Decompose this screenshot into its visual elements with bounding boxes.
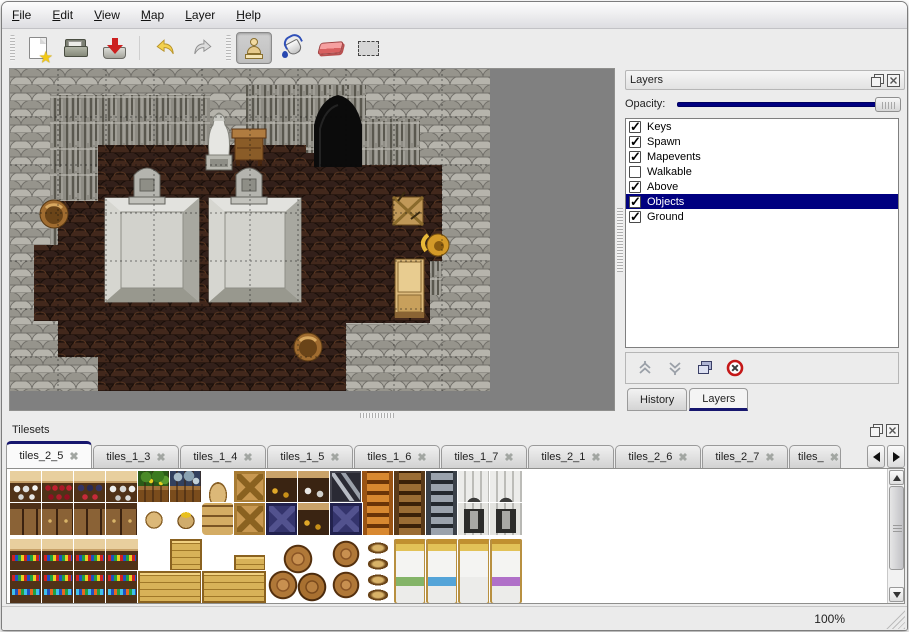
float-panel-icon[interactable] — [870, 424, 883, 437]
tileset-tab-label: tiles_2_1 — [541, 451, 585, 463]
tile-crate-navy[interactable] — [330, 503, 362, 535]
close-panel-icon[interactable] — [887, 74, 900, 87]
toolbar-grip[interactable] — [226, 35, 231, 61]
tile-ladder-gray[interactable] — [426, 471, 458, 535]
layer-row-mapevents[interactable]: Mapevents — [626, 149, 898, 164]
menu-layer[interactable]: Layer — [185, 8, 215, 22]
redo-icon — [191, 37, 215, 59]
tile-shelf-goods-bot[interactable] — [106, 571, 138, 603]
app-window: FileEditViewMapLayerHelp ★ — [1, 1, 908, 631]
tile-sack-big[interactable] — [138, 503, 170, 535]
platform[interactable] — [209, 198, 301, 302]
dock-tabs: HistoryLayers — [627, 388, 750, 411]
tile-sign-z4[interactable] — [330, 471, 362, 503]
opacity-slider-groove[interactable] — [677, 102, 899, 107]
close-tab-icon[interactable] — [765, 451, 774, 464]
tile-pot-stack[interactable] — [362, 539, 394, 603]
tile-sack-open[interactable] — [170, 503, 202, 535]
layer-row-ground[interactable]: Ground — [626, 209, 898, 224]
tile-plant-crate[interactable] — [138, 471, 170, 503]
opacity-label: Opacity: — [625, 98, 677, 110]
side-table[interactable] — [232, 129, 266, 166]
close-tab-icon[interactable] — [69, 450, 78, 463]
menu-edit[interactable]: Edit — [52, 8, 73, 22]
tileset-tab-label: tiles_ — [798, 451, 824, 463]
layers-panel: Layers Opacity: KeysSpawnMapeventsWalkab… — [625, 68, 905, 411]
close-tab-icon[interactable] — [591, 451, 600, 464]
float-panel-icon[interactable] — [871, 74, 884, 87]
tile-shelf-goods-bot[interactable] — [74, 571, 106, 603]
layer-visibility-checkbox[interactable] — [629, 136, 641, 148]
tileset-tab-label: tiles_1_4 — [193, 451, 237, 463]
tab-history[interactable]: History — [627, 388, 687, 411]
layer-visibility-checkbox[interactable] — [629, 166, 641, 178]
toolbar: ★ — [2, 30, 907, 66]
tileset-tab-tiles_1_5[interactable]: tiles_1_5 — [267, 445, 353, 468]
close-tab-icon[interactable] — [243, 451, 252, 464]
tile-crate-half[interactable] — [234, 555, 266, 571]
tile-crate-navy[interactable] — [266, 503, 298, 535]
tileset-tab-tiles_1_7[interactable]: tiles_1_7 — [441, 445, 527, 468]
tile-crate-x[interactable] — [234, 503, 266, 535]
tile-crate-x[interactable] — [234, 471, 266, 503]
status-bar: 100% — [2, 606, 907, 631]
tab-layers[interactable]: Layers — [689, 388, 748, 411]
tile-shelf-drawer2[interactable] — [106, 503, 138, 535]
tileset-tab-tiles_2_1[interactable]: tiles_2_1 — [528, 445, 614, 468]
tilesets-panel: Tilesets tiles_2_5tiles_1_3tiles_1_4tile… — [6, 420, 905, 606]
vertical-splitter[interactable] — [615, 68, 625, 411]
close-tab-icon[interactable] — [678, 451, 687, 464]
tileset-tab-label: tiles_1_6 — [367, 451, 411, 463]
save-icon — [102, 38, 127, 59]
platform[interactable] — [105, 198, 199, 302]
tile-shelf-goods-bot[interactable] — [42, 571, 74, 603]
tile-crate-wide[interactable] — [202, 571, 266, 603]
tileset-tab-tiles_2_5[interactable]: tiles_2_5 — [6, 441, 92, 468]
scroll-down-icon[interactable] — [889, 587, 904, 602]
redo-button[interactable] — [185, 32, 221, 64]
layer-name: Keys — [647, 121, 671, 133]
tile-shelf-wine[interactable] — [42, 471, 74, 503]
tileset-tab-label: tiles_1_3 — [106, 451, 150, 463]
close-tab-icon[interactable] — [504, 451, 513, 464]
tile-shelf-drawer[interactable] — [10, 503, 42, 535]
scroll-tabs-right-button[interactable] — [887, 445, 905, 468]
layer-visibility-checkbox[interactable] — [629, 121, 641, 133]
menu-help[interactable]: Help — [236, 8, 261, 22]
layer-row-walkable[interactable]: Walkable — [626, 164, 898, 179]
close-tab-icon[interactable] — [830, 451, 839, 464]
tile-crate-wide[interactable] — [138, 571, 202, 603]
layer-visibility-checkbox[interactable] — [629, 196, 641, 208]
tile-fish-crate[interactable] — [170, 471, 202, 503]
basket[interactable] — [40, 200, 68, 228]
raise-layer-button[interactable] — [634, 357, 656, 379]
toolbar-grip[interactable] — [10, 35, 15, 61]
tileset-content[interactable] — [6, 468, 905, 604]
menu-file[interactable]: File — [12, 8, 31, 22]
tile-counter-gold[interactable] — [298, 503, 330, 535]
tileset-tiles[interactable] — [10, 471, 870, 603]
broken-crate[interactable] — [393, 192, 423, 225]
tileset-tab-tiles_1_4[interactable]: tiles_1_4 — [180, 445, 266, 468]
tile-sack-pile[interactable] — [202, 503, 234, 535]
stamp-button[interactable] — [236, 32, 272, 64]
tile-shelf-goods-bot[interactable] — [10, 571, 42, 603]
layer-visibility-checkbox[interactable] — [629, 181, 641, 193]
layer-name: Ground — [647, 211, 684, 223]
map-view[interactable] — [9, 68, 615, 411]
open-folder-icon — [64, 39, 89, 58]
open-button[interactable] — [58, 32, 94, 64]
scrollbar-thumb[interactable] — [889, 486, 904, 570]
tile-shelf-jars[interactable] — [106, 471, 138, 503]
tile-shelf-goods-top[interactable] — [10, 539, 42, 571]
arrow-right-icon — [893, 452, 900, 462]
layer-name: Objects — [647, 196, 684, 208]
tileset-tab-label: tiles_2_5 — [19, 450, 63, 462]
tile-crate-lid[interactable] — [170, 539, 202, 571]
splitter-grip[interactable] — [617, 208, 623, 272]
tile-bed-green[interactable] — [394, 539, 426, 603]
tile-shelf-dishes[interactable] — [10, 471, 42, 503]
arrow-left-icon — [873, 452, 880, 462]
tileset-tab-tiles_1_6[interactable]: tiles_1_6 — [354, 445, 440, 468]
eraser-tool-icon — [317, 41, 344, 55]
layers-panel-title: Layers — [630, 74, 868, 86]
menu-map[interactable]: Map — [141, 8, 164, 22]
layer-visibility-checkbox[interactable] — [629, 211, 641, 223]
tileset-tab-tiles[interactable]: tiles_ — [789, 445, 841, 468]
fill-tool-icon — [279, 36, 305, 60]
eraser-button[interactable] — [312, 32, 348, 64]
layer-name: Above — [647, 181, 678, 193]
tile-shelf-drawer2[interactable] — [42, 503, 74, 535]
tile-ladder-brown[interactable] — [394, 471, 426, 535]
tile-arch-top[interactable] — [490, 471, 522, 503]
layers-panel-titlebar[interactable]: Layers — [625, 70, 905, 90]
close-panel-icon[interactable] — [886, 424, 899, 437]
layer-visibility-checkbox[interactable] — [629, 151, 641, 163]
resize-grip[interactable] — [885, 609, 905, 629]
duplicate-layer-button[interactable] — [694, 357, 716, 379]
tilesets-title: Tilesets — [12, 424, 867, 436]
new-file-icon: ★ — [29, 37, 47, 59]
tileset-tabbar: tiles_2_5tiles_1_3tiles_1_4tiles_1_5tile… — [6, 441, 905, 468]
tab-scroll-buttons — [867, 445, 905, 468]
splitter-grip[interactable] — [360, 413, 394, 418]
tile-shelf-goods-top[interactable] — [74, 539, 106, 571]
layer-row-spawn[interactable]: Spawn — [626, 134, 898, 149]
delete-layer-button[interactable] — [724, 357, 746, 379]
lower-layer-button[interactable] — [664, 357, 686, 379]
fill-button[interactable] — [274, 32, 310, 64]
tileset-scrollbar[interactable] — [887, 469, 904, 603]
tile-arch-door[interactable] — [458, 503, 490, 535]
layer-name: Spawn — [647, 136, 681, 148]
tile-bed-white[interactable] — [458, 539, 490, 603]
tile-counter-gold[interactable] — [266, 471, 298, 503]
layer-row-above[interactable]: Above — [626, 179, 898, 194]
tile-ladder-orange[interactable] — [362, 471, 394, 535]
tile-counter-dish[interactable] — [298, 471, 330, 503]
select-tool-icon — [358, 41, 379, 56]
stamp-tool-icon — [243, 38, 265, 59]
layer-list[interactable]: KeysSpawnMapeventsWalkableAboveObjectsGr… — [625, 118, 899, 348]
layer-name: Walkable — [647, 166, 692, 178]
tile-barrel-pile[interactable] — [266, 539, 330, 603]
scroll-up-icon[interactable] — [889, 470, 904, 485]
save-button[interactable] — [96, 32, 132, 64]
tileset-tab-label: tiles_2_6 — [628, 451, 672, 463]
close-tab-icon[interactable] — [330, 451, 339, 464]
tileset-tab-label: tiles_1_7 — [454, 451, 498, 463]
basket[interactable] — [294, 333, 322, 361]
tile-shelf-goods-top[interactable] — [106, 539, 138, 571]
tileset-tab-tiles_2_6[interactable]: tiles_2_6 — [615, 445, 701, 468]
close-tab-icon[interactable] — [417, 451, 426, 464]
tile-bed-blue[interactable] — [426, 539, 458, 603]
toolbar-separator — [139, 36, 140, 60]
select-button[interactable] — [350, 32, 386, 64]
layer-name: Mapevents — [647, 151, 701, 163]
undo-icon — [153, 37, 177, 59]
tilesets-titlebar[interactable]: Tilesets — [6, 420, 905, 440]
tile-barrel-two[interactable] — [330, 539, 362, 603]
opacity-slider[interactable] — [677, 96, 901, 112]
undo-button[interactable] — [147, 32, 183, 64]
opacity-slider-handle[interactable] — [875, 97, 901, 112]
layer-buttons — [625, 352, 899, 384]
tileset-tab-label: tiles_1_5 — [280, 451, 324, 463]
close-tab-icon[interactable] — [156, 451, 165, 464]
menu-bar: FileEditViewMapLayerHelp — [2, 2, 907, 29]
tile-shelf-drawer[interactable] — [74, 503, 106, 535]
tile-shelf-goods-top[interactable] — [42, 539, 74, 571]
menu-view[interactable]: View — [94, 8, 120, 22]
cabinet[interactable] — [395, 259, 424, 318]
horizontal-splitter[interactable] — [2, 411, 907, 420]
tile-arch-top[interactable] — [458, 471, 490, 503]
new-button[interactable]: ★ — [20, 32, 56, 64]
tileset-tab-tiles_2_7[interactable]: tiles_2_7 — [702, 445, 788, 468]
opacity-row: Opacity: — [625, 94, 905, 114]
layer-row-objects[interactable]: Objects — [626, 194, 898, 209]
scroll-tabs-left-button[interactable] — [867, 445, 885, 468]
layer-row-keys[interactable]: Keys — [626, 119, 898, 134]
tile-shelf-dark[interactable] — [74, 471, 106, 503]
zoom-level: 100% — [814, 612, 845, 626]
tileset-tab-tiles_1_3[interactable]: tiles_1_3 — [93, 445, 179, 468]
tileset-tab-label: tiles_2_7 — [715, 451, 759, 463]
map-canvas[interactable] — [10, 69, 490, 391]
tile-bed-purple[interactable] — [490, 539, 522, 603]
tile-sack-top[interactable] — [202, 471, 234, 503]
tile-arch-door[interactable] — [490, 503, 522, 535]
